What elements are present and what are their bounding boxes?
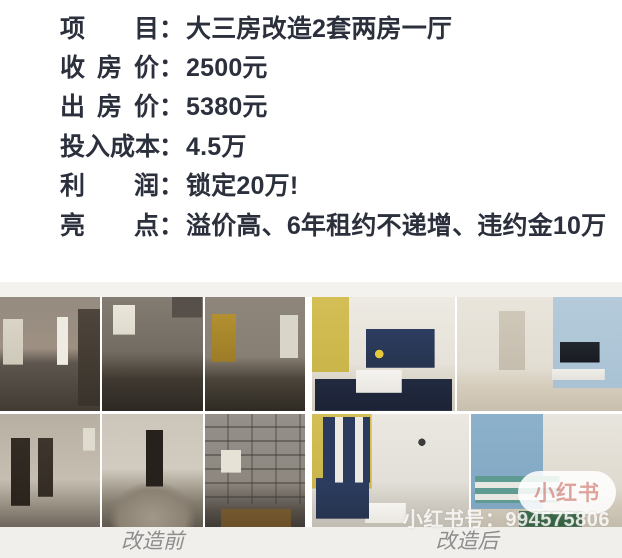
photo-before-concrete-block-wall <box>205 414 305 527</box>
stat-label: 出房价 <box>60 87 159 123</box>
photo-before-rubble-pile-room <box>102 414 202 527</box>
stat-colon: ： <box>159 206 184 242</box>
before-caption: 改造前 <box>0 527 305 558</box>
stat-value: 5380元 <box>186 87 268 123</box>
stat-colon: ： <box>159 9 184 45</box>
photo-before-broken-door-openings <box>0 414 100 527</box>
xiaohongshu-account-watermark: 小红书号：994575806 <box>403 503 610 532</box>
stat-label: 收房价 <box>60 48 159 84</box>
stat-label: 项目 <box>60 9 159 45</box>
stat-value: 2500元 <box>186 48 268 84</box>
stat-row-rentout: 出房价：5380元 <box>60 86 614 125</box>
before-row-1 <box>0 297 305 411</box>
xiaohongshu-post-image: 项目：大三房改造2套两房一厅 收房价：2500元 出房价：5380元 投入成本：… <box>0 0 622 558</box>
after-row-1 <box>312 297 622 411</box>
stat-value: 大三房改造2套两房一厅 <box>186 9 452 45</box>
stat-label: 亮点 <box>60 206 159 242</box>
collage-top-strip <box>0 282 622 297</box>
stat-row-profit: 利润：锁定20万! <box>60 165 614 204</box>
renovation-collage: 改造前 改造后 小红书 小红书号：994575806 <box>0 282 622 558</box>
stat-value: 溢价高、6年租约不递增、违约金10万 <box>186 206 606 242</box>
photo-after-hallway-tv <box>457 297 622 411</box>
stat-row-acquire-rent: 收房价：2500元 <box>60 46 614 85</box>
stat-value: 锁定20万! <box>186 166 298 202</box>
stat-colon: ： <box>159 127 184 163</box>
photo-after-living-room-navy-sofa <box>312 297 455 411</box>
stat-label: 投入成本 <box>60 127 159 163</box>
column-divider <box>305 297 312 527</box>
stat-row-project: 项目：大三房改造2套两房一厅 <box>60 7 614 46</box>
photo-before-dark-stripped-room <box>102 297 202 411</box>
photo-before-gutted-living-room <box>0 297 100 411</box>
stat-colon: ： <box>159 166 184 202</box>
stat-label: 利润 <box>60 166 159 202</box>
before-row-2 <box>0 414 305 527</box>
stat-row-investment: 投入成本：4.5万 <box>60 125 614 164</box>
stat-colon: ： <box>159 87 184 123</box>
photo-before-yellow-cabinet-room <box>205 297 305 411</box>
stat-colon: ： <box>159 48 184 84</box>
before-photos-column <box>0 297 305 527</box>
project-stats-block: 项目：大三房改造2套两房一厅 收房价：2500元 出房价：5380元 投入成本：… <box>60 7 614 243</box>
stat-row-highlights: 亮点：溢价高、6年租约不递增、违约金10万 <box>60 204 614 243</box>
stat-value: 4.5万 <box>186 127 247 163</box>
